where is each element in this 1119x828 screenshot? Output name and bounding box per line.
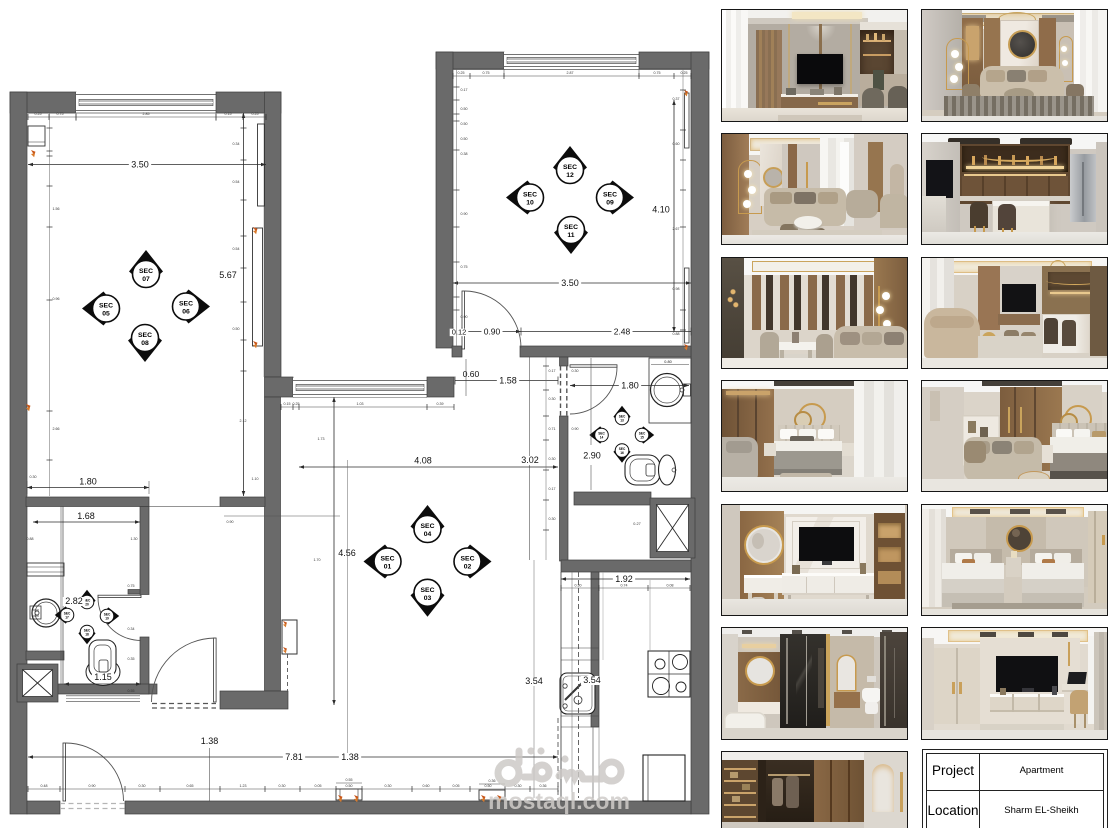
svg-text:SEC: SEC — [523, 192, 537, 199]
svg-text:2.67: 2.67 — [673, 227, 680, 231]
svg-text:5.67: 5.67 — [219, 270, 237, 280]
svg-text:2.87: 2.87 — [567, 71, 574, 75]
svg-text:0.34: 0.34 — [233, 142, 240, 146]
svg-text:0.60: 0.60 — [463, 369, 480, 379]
svg-text:0.54: 0.54 — [233, 247, 240, 251]
svg-text:01: 01 — [384, 564, 392, 571]
svg-text:0.08: 0.08 — [667, 584, 674, 588]
svg-text:0.98: 0.98 — [673, 287, 680, 291]
svg-text:3.50: 3.50 — [131, 160, 149, 170]
svg-text:02: 02 — [464, 564, 472, 571]
svg-text:08: 08 — [141, 340, 149, 347]
svg-text:0.60: 0.60 — [673, 142, 680, 146]
svg-text:2.48: 2.48 — [614, 327, 631, 337]
svg-text:0.34: 0.34 — [128, 627, 135, 631]
svg-text:SEC: SEC — [421, 523, 435, 530]
svg-text:0.90: 0.90 — [484, 327, 501, 337]
svg-text:0.27: 0.27 — [633, 522, 640, 526]
svg-text:1.92: 1.92 — [615, 574, 633, 584]
svg-text:0.71: 0.71 — [549, 427, 556, 431]
svg-text:0.96: 0.96 — [53, 297, 60, 301]
svg-text:0.25: 0.25 — [458, 71, 465, 75]
svg-text:0.38: 0.38 — [461, 152, 468, 156]
svg-text:0.30: 0.30 — [139, 784, 146, 788]
svg-text:SEC: SEC — [564, 224, 578, 231]
svg-text:0.75: 0.75 — [483, 71, 490, 75]
svg-text:0.90: 0.90 — [461, 315, 468, 319]
svg-text:0.17: 0.17 — [549, 487, 556, 491]
svg-text:0.37: 0.37 — [673, 97, 680, 101]
svg-text:0.30: 0.30 — [279, 784, 286, 788]
svg-text:1.10: 1.10 — [252, 477, 259, 481]
svg-text:14: 14 — [600, 436, 604, 440]
svg-text:0.39: 0.39 — [437, 402, 444, 406]
svg-text:1.56: 1.56 — [53, 207, 60, 211]
svg-text:0.50: 0.50 — [233, 327, 240, 331]
svg-text:09: 09 — [606, 200, 614, 207]
svg-text:SEC: SEC — [421, 587, 435, 594]
svg-text:0.17: 0.17 — [549, 369, 556, 373]
svg-text:SEC: SEC — [99, 303, 113, 310]
svg-text:0.35: 0.35 — [128, 657, 135, 661]
svg-text:7.81: 7.81 — [285, 752, 303, 762]
svg-text:1.38: 1.38 — [201, 736, 219, 746]
svg-text:SEC: SEC — [139, 268, 153, 275]
svg-text:0.25: 0.25 — [252, 112, 259, 116]
svg-text:3.02: 3.02 — [521, 455, 539, 465]
svg-text:0.30: 0.30 — [575, 584, 582, 588]
svg-text:SEC: SEC — [381, 556, 395, 563]
svg-text:0.25: 0.25 — [681, 71, 688, 75]
svg-text:1.23: 1.23 — [240, 784, 247, 788]
svg-text:04: 04 — [424, 531, 432, 538]
svg-text:0.88: 0.88 — [27, 537, 34, 541]
svg-text:1.73: 1.73 — [318, 437, 325, 441]
svg-text:0.15: 0.15 — [284, 402, 291, 406]
svg-text:0.60: 0.60 — [423, 784, 430, 788]
svg-text:0.30: 0.30 — [549, 397, 556, 401]
svg-text:13: 13 — [620, 419, 624, 423]
svg-text:2.12: 2.12 — [240, 419, 247, 423]
svg-text:3.54: 3.54 — [583, 675, 601, 685]
svg-text:0.05: 0.05 — [315, 784, 322, 788]
svg-text:0.75: 0.75 — [57, 112, 64, 116]
svg-text:0.50: 0.50 — [461, 137, 468, 141]
svg-text:3.54: 3.54 — [525, 676, 543, 686]
svg-text:4.10: 4.10 — [652, 205, 670, 215]
svg-text:05: 05 — [102, 311, 110, 318]
svg-text:0.55: 0.55 — [346, 778, 353, 782]
svg-text:12: 12 — [566, 172, 574, 179]
svg-text:0.74: 0.74 — [621, 584, 628, 588]
svg-text:0.30: 0.30 — [385, 784, 392, 788]
svg-text:SEC: SEC — [179, 301, 193, 308]
svg-text:11: 11 — [567, 232, 574, 239]
svg-text:0.90: 0.90 — [89, 784, 96, 788]
svg-text:0.50: 0.50 — [346, 784, 353, 788]
svg-text:07: 07 — [142, 276, 150, 283]
svg-text:0.55: 0.55 — [128, 689, 135, 693]
svg-text:1.68: 1.68 — [77, 511, 95, 521]
svg-text:4.56: 4.56 — [338, 548, 356, 558]
svg-text:0.65: 0.65 — [187, 784, 194, 788]
svg-text:0.48: 0.48 — [41, 784, 48, 788]
svg-text:0.05: 0.05 — [453, 784, 460, 788]
svg-text:1.80: 1.80 — [79, 477, 97, 487]
svg-text:mostaql.com: mostaql.com — [488, 788, 630, 814]
svg-text:0.15: 0.15 — [225, 112, 232, 116]
svg-text:2.90: 2.90 — [583, 451, 601, 461]
svg-text:0.54: 0.54 — [233, 180, 240, 184]
svg-text:0.50: 0.50 — [461, 107, 468, 111]
svg-text:SEC: SEC — [563, 164, 577, 171]
svg-text:1.80: 1.80 — [621, 381, 639, 391]
svg-text:06: 06 — [182, 309, 190, 316]
svg-text:10: 10 — [526, 200, 534, 207]
svg-text:1.70: 1.70 — [314, 558, 321, 562]
svg-text:0.30: 0.30 — [572, 369, 579, 373]
svg-text:0.30: 0.30 — [30, 475, 37, 479]
svg-text:17: 17 — [65, 616, 69, 620]
svg-text:0.80: 0.80 — [664, 360, 671, 364]
svg-text:0.90: 0.90 — [572, 427, 579, 431]
svg-text:15: 15 — [640, 436, 644, 440]
svg-text:2.66: 2.66 — [53, 427, 60, 431]
svg-text:1.03: 1.03 — [357, 402, 364, 406]
svg-text:1.30: 1.30 — [131, 537, 138, 541]
svg-text:0.30: 0.30 — [549, 457, 556, 461]
svg-text:18: 18 — [85, 633, 89, 637]
svg-text:0.17: 0.17 — [461, 88, 468, 92]
svg-text:0.50: 0.50 — [461, 122, 468, 126]
svg-text:20: 20 — [85, 603, 89, 607]
svg-text:SEC: SEC — [603, 192, 617, 199]
svg-text:0.75: 0.75 — [654, 71, 661, 75]
svg-text:1.38: 1.38 — [341, 752, 359, 762]
svg-text:0.88: 0.88 — [673, 332, 680, 336]
svg-text:4.08: 4.08 — [414, 456, 432, 466]
svg-text:3.50: 3.50 — [561, 278, 579, 288]
svg-text:0.90: 0.90 — [461, 212, 468, 216]
svg-text:2.85: 2.85 — [143, 112, 150, 116]
svg-text:0.75: 0.75 — [128, 584, 135, 588]
svg-text:03: 03 — [424, 595, 432, 602]
svg-text:19: 19 — [105, 617, 109, 621]
svg-text:0.90: 0.90 — [227, 520, 234, 524]
svg-text:0.25: 0.25 — [293, 402, 300, 406]
svg-text:0.25: 0.25 — [35, 112, 42, 116]
svg-text:1.15: 1.15 — [94, 672, 112, 682]
svg-text:16: 16 — [620, 451, 624, 455]
svg-text:0.12: 0.12 — [452, 328, 467, 337]
svg-text:0.30: 0.30 — [549, 517, 556, 521]
svg-text:1.58: 1.58 — [499, 376, 517, 386]
svg-text:SEC: SEC — [138, 332, 152, 339]
svg-text:SEC: SEC — [461, 556, 475, 563]
svg-text:2.82: 2.82 — [65, 596, 83, 606]
svg-text:0.75: 0.75 — [461, 265, 468, 269]
